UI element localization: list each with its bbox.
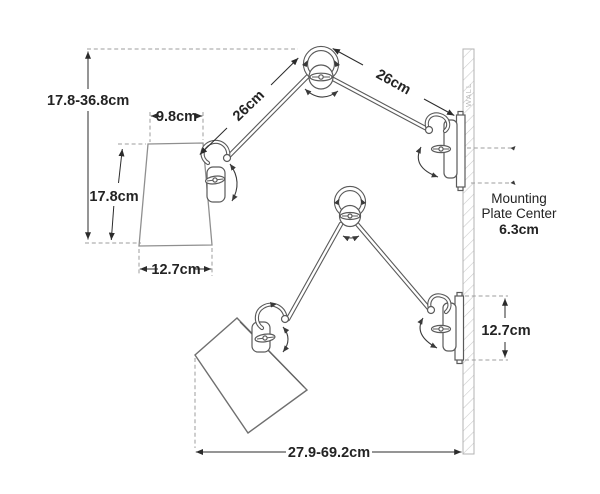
overall-height-label: 17.8-36.8cm bbox=[47, 93, 129, 109]
wall-section: WALL bbox=[463, 49, 474, 454]
wall-hatch-strip bbox=[463, 49, 474, 454]
lower-shade-joint bbox=[252, 302, 289, 352]
upper-arm-to-wall bbox=[333, 79, 429, 130]
shade-rotation-arc bbox=[283, 327, 288, 352]
shade-rotation-arc bbox=[230, 164, 237, 201]
diagram-canvas: WALL bbox=[0, 0, 600, 494]
wall-label: WALL bbox=[464, 83, 473, 107]
elbow-rotation-arc bbox=[343, 236, 359, 238]
arm-length-label: 26cm bbox=[230, 87, 268, 124]
dimension-line bbox=[111, 206, 114, 240]
mounting-note-line1: Mounting bbox=[491, 191, 547, 206]
lower-arm-to-shade bbox=[288, 224, 341, 319]
upper-shade bbox=[139, 143, 212, 246]
extension-range-label: 27.9-69.2cm bbox=[288, 445, 370, 461]
dimension-line bbox=[200, 128, 227, 155]
dimension-line bbox=[271, 58, 298, 85]
mounting-note-line2: Plate Center bbox=[481, 206, 557, 221]
lower-shade bbox=[195, 318, 307, 433]
lower-arm-to-wall bbox=[357, 224, 431, 311]
dimensions: 17.8-36.8cm 9.8cm 17.8cm 12.7cm bbox=[47, 49, 557, 462]
elbow-rotation-arc bbox=[305, 89, 338, 97]
dim-mounting-plate-center: Mounting Plate Center 6.3cm bbox=[467, 146, 557, 237]
dimension-line bbox=[119, 149, 123, 183]
backplate-height-label: 12.7cm bbox=[481, 323, 530, 339]
dim-backplate-height: 12.7cm bbox=[465, 296, 531, 360]
shade-top-width-label: 9.8cm bbox=[156, 109, 197, 125]
shade-bottom-width-label: 12.7cm bbox=[151, 262, 200, 278]
lower-mount-rotation-arc bbox=[420, 318, 437, 348]
dim-shade-height: 17.8cm bbox=[89, 144, 146, 240]
mounting-note-value: 6.3cm bbox=[499, 221, 539, 237]
arm-length-label: 26cm bbox=[373, 66, 413, 98]
upper-wall-mount bbox=[418, 112, 465, 191]
upper-mount-plate bbox=[457, 115, 466, 187]
upper-elbow-joint bbox=[302, 49, 340, 98]
tick bbox=[511, 181, 516, 186]
upper-lamp-view bbox=[139, 49, 465, 247]
tick bbox=[511, 146, 516, 151]
lamp-dimension-diagram: WALL bbox=[0, 0, 600, 494]
lower-lamp-view bbox=[195, 189, 464, 434]
dim-arm-to-shade: 26cm bbox=[200, 58, 298, 155]
shade-joint-bracket bbox=[207, 167, 225, 202]
shade-height-label: 17.8cm bbox=[89, 189, 138, 205]
dim-shade-top-width: 9.8cm bbox=[150, 109, 203, 142]
dim-arm-to-wall: 26cm bbox=[333, 49, 455, 116]
dim-shade-bottom-width: 12.7cm bbox=[139, 248, 212, 278]
